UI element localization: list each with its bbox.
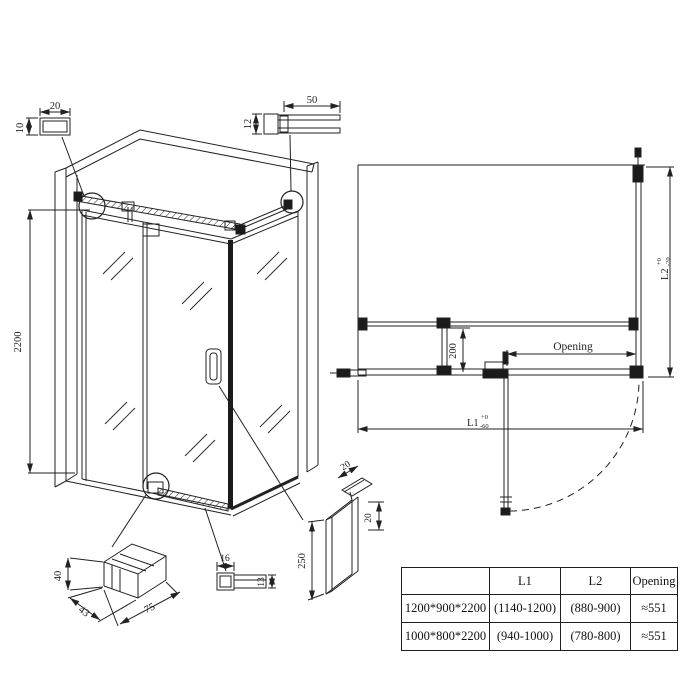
door-handle	[206, 349, 221, 384]
open-door	[500, 378, 512, 515]
plan-view	[330, 148, 674, 515]
spec-table-row: 1000*800*2200 (940-1000) (780-800) ≈551	[402, 623, 678, 651]
cell-l2: (880-900)	[561, 595, 631, 623]
top-profile-detail	[252, 101, 340, 191]
plan-l2-label: L2 +0 -20	[656, 257, 672, 280]
cell-l2: (780-800)	[561, 623, 631, 651]
tube-height-label: 10	[15, 123, 26, 134]
right-wall	[307, 162, 318, 472]
cell-size: 1000*800*2200	[402, 623, 490, 651]
cell-opening: ≈551	[631, 595, 678, 623]
clamp-75-label: 75	[143, 601, 157, 616]
l2-text: L2	[660, 268, 671, 280]
door-swing-arc	[510, 383, 639, 511]
top-rim	[66, 130, 314, 177]
l2-tol-minus: -20	[665, 257, 672, 266]
rail-16-label: 16	[220, 554, 230, 564]
cell-l1: (940-1000)	[490, 623, 561, 651]
l1-tol-minus: -60	[480, 423, 489, 430]
plan-opening-label: Opening	[553, 341, 593, 353]
clamp-40-label: 40	[53, 571, 64, 582]
l2-tol-plus: +0	[656, 258, 663, 265]
dim-2200	[28, 210, 90, 473]
l1-tol-plus: +0	[481, 414, 488, 421]
front-elevation-view	[28, 130, 318, 571]
header-opening: Opening	[631, 568, 678, 595]
technical-drawing-sheet: 20 10 50 12	[0, 0, 700, 700]
plan-hinge	[483, 352, 508, 378]
leader-lines	[112, 386, 303, 571]
plan-200-label: 200	[448, 343, 459, 359]
header-size	[402, 568, 490, 595]
profile-height-label: 12	[243, 119, 254, 130]
spec-table-header-row: L1 L2 Opening	[402, 568, 678, 595]
header-l2: L2	[561, 568, 631, 595]
spec-table: L1 L2 Opening 1200*900*2200 (1140-1200) …	[401, 567, 678, 651]
rail-profile-detail	[217, 562, 276, 590]
handle-250-label: 250	[297, 553, 308, 569]
callout-circle-top-left	[79, 193, 105, 219]
bottom-rail	[148, 482, 228, 511]
left-wall	[55, 168, 77, 487]
l1-text: L1	[467, 418, 479, 429]
glass-shine-marks	[103, 252, 290, 462]
elevation-height-label: 2200	[13, 332, 24, 353]
header-l1: L1	[490, 568, 561, 595]
handle-detail	[308, 466, 384, 600]
handle-20-right-label: 20	[364, 513, 374, 523]
handle-20-top-label: 20	[339, 459, 353, 473]
front-glass-panels	[66, 210, 233, 515]
plan-l1-label: L1 +0 -60	[467, 414, 489, 430]
side-glass-panel	[231, 211, 300, 516]
rail-13-label: 13	[257, 577, 267, 587]
cell-opening: ≈551	[631, 623, 678, 651]
clamp-43-label: 43	[76, 604, 91, 619]
spec-table-row: 1200*900*2200 (1140-1200) (880-900) ≈551	[402, 595, 678, 623]
cell-l1: (1140-1200)	[490, 595, 561, 623]
cell-size: 1200*900*2200	[402, 595, 490, 623]
profile-width-label: 50	[307, 95, 318, 106]
tube-width-label: 20	[50, 101, 61, 112]
